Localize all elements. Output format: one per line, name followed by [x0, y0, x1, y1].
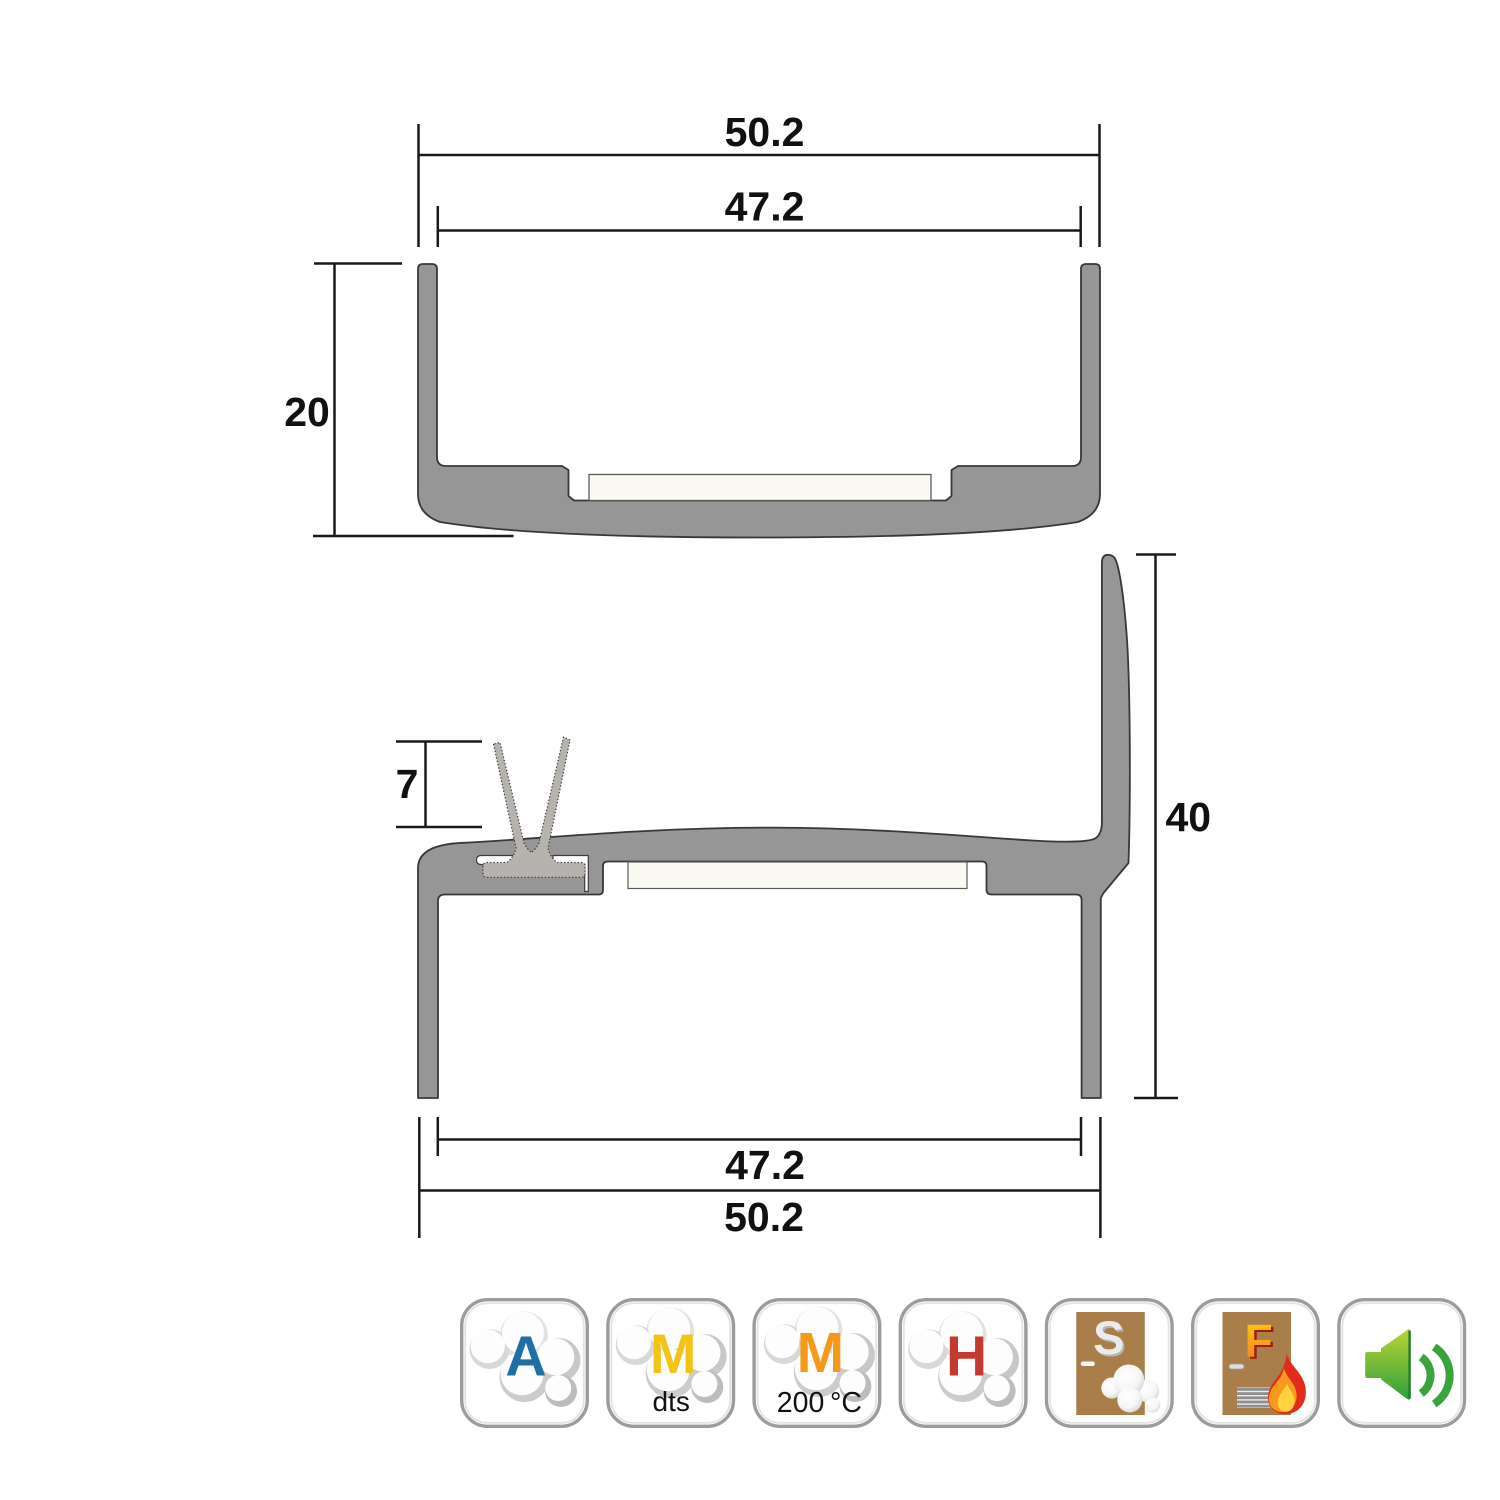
- svg-text:M: M: [797, 1321, 844, 1385]
- svg-text:40: 40: [1166, 794, 1212, 840]
- svg-text:200 °C: 200 °C: [777, 1387, 862, 1419]
- svg-text:H: H: [946, 1325, 987, 1389]
- svg-text:7: 7: [396, 761, 419, 807]
- svg-text:M: M: [650, 1322, 697, 1385]
- svg-text:50.2: 50.2: [725, 109, 805, 155]
- svg-text:47.2: 47.2: [725, 1142, 805, 1188]
- svg-text:S: S: [1093, 1311, 1124, 1364]
- svg-text:50.2: 50.2: [724, 1194, 804, 1240]
- svg-text:F: F: [1244, 1315, 1272, 1367]
- svg-text:dts: dts: [653, 1386, 690, 1417]
- svg-text:20: 20: [284, 389, 330, 435]
- svg-text:47.2: 47.2: [725, 184, 805, 230]
- svg-text:A: A: [505, 1325, 546, 1389]
